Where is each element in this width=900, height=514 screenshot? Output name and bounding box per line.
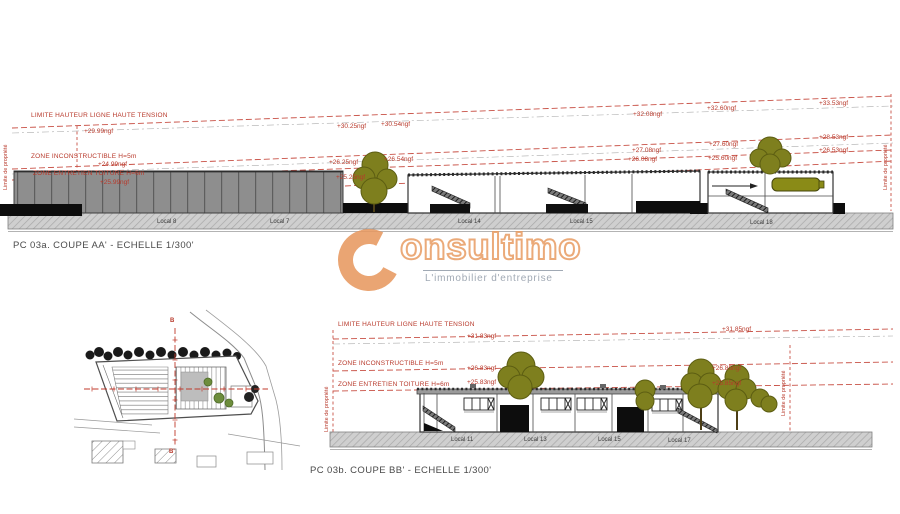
building-right-aa [690, 172, 845, 214]
section-marker-b-top: B [170, 318, 174, 324]
coupe-bb-drawing [330, 329, 893, 450]
elevation-bb-5: +25.85ngf [712, 381, 741, 388]
consultimo-wordmark: onsultimo [400, 225, 581, 269]
zone-label-tension-bb: LIMITE HAUTEUR LIGNE HAUTE TENSION [338, 322, 475, 329]
elevation-aa-r1-2: +30.54ngf [381, 122, 410, 129]
zone-label-tension-aa: LIMITE HAUTEUR LIGNE HAUTE TENSION [31, 113, 168, 120]
elevation-bb-0: +31.83ngf [467, 334, 496, 341]
limite-propriete-left-bb: Limite de propriété [325, 386, 331, 432]
elevation-aa-r1-5: +33.53ngf [819, 101, 848, 108]
architectural-drawing-sheet: LIMITE HAUTEUR LIGNE HAUTE TENSION +29.9… [0, 0, 900, 514]
neighbor-building-1 [92, 441, 123, 463]
zone-label-inconstructible-aa: ZONE INCONSTRUCTIBLE H=5m [31, 154, 137, 161]
duct-element [772, 178, 820, 191]
building-bb [417, 384, 721, 433]
door-opening-1 [500, 405, 529, 432]
tree-aa-2 [750, 137, 791, 174]
elevation-aa-r2-0: +24.99ngf [98, 162, 127, 169]
limite-propriete-right-bb: Limite de propriété [782, 370, 788, 416]
local-label-aa-0: Local 8 [157, 219, 176, 225]
elevation-aa-r3-0: +25.99ngf [100, 180, 129, 187]
watermark-divider [423, 270, 563, 271]
local-label-bb-2: Local 15 [598, 437, 621, 443]
neighbor-building-3 [197, 456, 216, 467]
elevation-aa-r3-4: +26.53ngf [819, 148, 848, 155]
neighbor-building-4 [247, 452, 273, 464]
local-label-bb-0: Local 11 [451, 437, 473, 443]
watermark-tagline: L'immobilier d'entreprise [425, 273, 553, 284]
elevation-aa-r2-2: +26.54ngf [384, 157, 413, 164]
local-label-bb-1: Local 13 [524, 437, 547, 443]
local-label-bb-3: Local 17 [668, 438, 691, 444]
zone-label-entretien-aa: ZONE ENTRETIEN TOITURE H=6m [33, 171, 145, 178]
building-middle-aa [408, 171, 700, 213]
elevation-aa-r1-4: +32.60ngf [707, 106, 736, 113]
elevation-bb-1: +31.85ngf [722, 327, 751, 334]
zone-label-inconstructible-bb: ZONE INCONSTRUCTIBLE H=5m [338, 361, 444, 368]
caption-coupe-aa: PC 03a. COUPE AA' - ECHELLE 1/300' [13, 240, 194, 251]
consultimo-watermark: onsultimo L'immobilier d'entreprise [338, 225, 638, 295]
elevation-aa-r1-0: +29.99ngf [84, 129, 113, 136]
parking-block [112, 367, 168, 414]
elevation-aa-r2-5: +28.53ngf [819, 135, 848, 142]
elevation-aa-r3-3: +25.60ngf [708, 156, 737, 163]
elevation-aa-r2-4: +27.60ngf [709, 142, 738, 149]
elevation-aa-r2-3: +27.08ngf [632, 148, 661, 155]
site-plan-drawing [74, 310, 300, 470]
elevation-aa-r2-1: +26.25ngf [329, 160, 358, 167]
limite-propriete-left-aa: Limite de propriété [4, 144, 10, 190]
elevation-aa-r3-2: +26.08ngf [628, 157, 657, 164]
local-label-aa-1: Local 7 [270, 219, 289, 225]
zone-label-entretien-bb: ZONE ENTRETIEN TOITURE H=6m [338, 382, 450, 389]
local-label-aa-4: Local 18 [750, 220, 773, 226]
elevation-bb-4: +26.85ngf [712, 366, 741, 373]
caption-coupe-bb: PC 03b. COUPE BB' - ECHELLE 1/300' [310, 465, 491, 476]
elevation-bb-3: +25.83ngf [467, 380, 496, 387]
elevation-aa-r1-3: +32.08ngf [633, 112, 662, 119]
door-opening-2 [617, 407, 644, 432]
elevation-bb-2: +26.83ngf [467, 366, 496, 373]
elevation-aa-r3-1: +25.25ngf [336, 175, 365, 182]
limite-propriete-right-aa: Limite de propriété [884, 144, 890, 190]
consultimo-logo-c-icon [330, 221, 408, 299]
section-marker-b-bottom: B' [169, 449, 175, 455]
elevation-aa-r1-1: +30.25ngf [337, 124, 366, 131]
